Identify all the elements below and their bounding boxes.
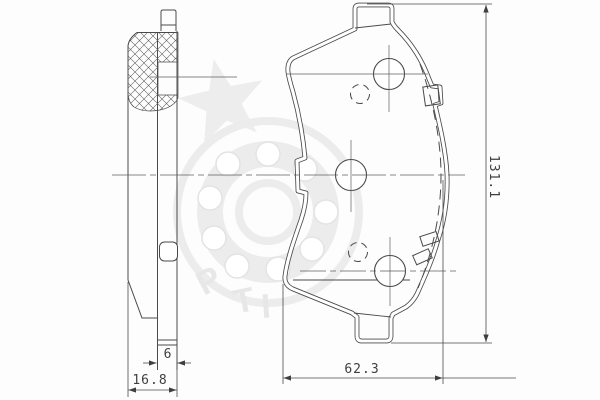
drawing-svg: P T I bbox=[0, 0, 600, 400]
dimension-height: 131.1 bbox=[367, 4, 501, 343]
side-view bbox=[128, 10, 178, 370]
brake-pad-engineering-drawing: P T I bbox=[0, 0, 600, 400]
dim-backplate-thickness-label: 6 bbox=[164, 347, 173, 362]
dim-height-label: 131.1 bbox=[486, 155, 501, 199]
dimension-backplate-thickness: 6 bbox=[143, 347, 191, 363]
rotor-edge-dashed-arc bbox=[418, 64, 441, 288]
watermark-letter-t: T bbox=[230, 280, 258, 322]
watermark-letter-i: I bbox=[260, 287, 272, 326]
bearing-inner-ring-icon bbox=[239, 183, 297, 241]
watermark-logo: P T I bbox=[172, 50, 359, 326]
dim-width-label: 62.3 bbox=[344, 362, 379, 377]
side-view-clip bbox=[160, 242, 178, 261]
side-view-top-tab bbox=[161, 10, 176, 31]
side-view-hatch-section bbox=[128, 33, 178, 112]
spring-clip-circle-top bbox=[351, 85, 370, 104]
dim-total-thickness-label: 16.8 bbox=[132, 373, 167, 388]
